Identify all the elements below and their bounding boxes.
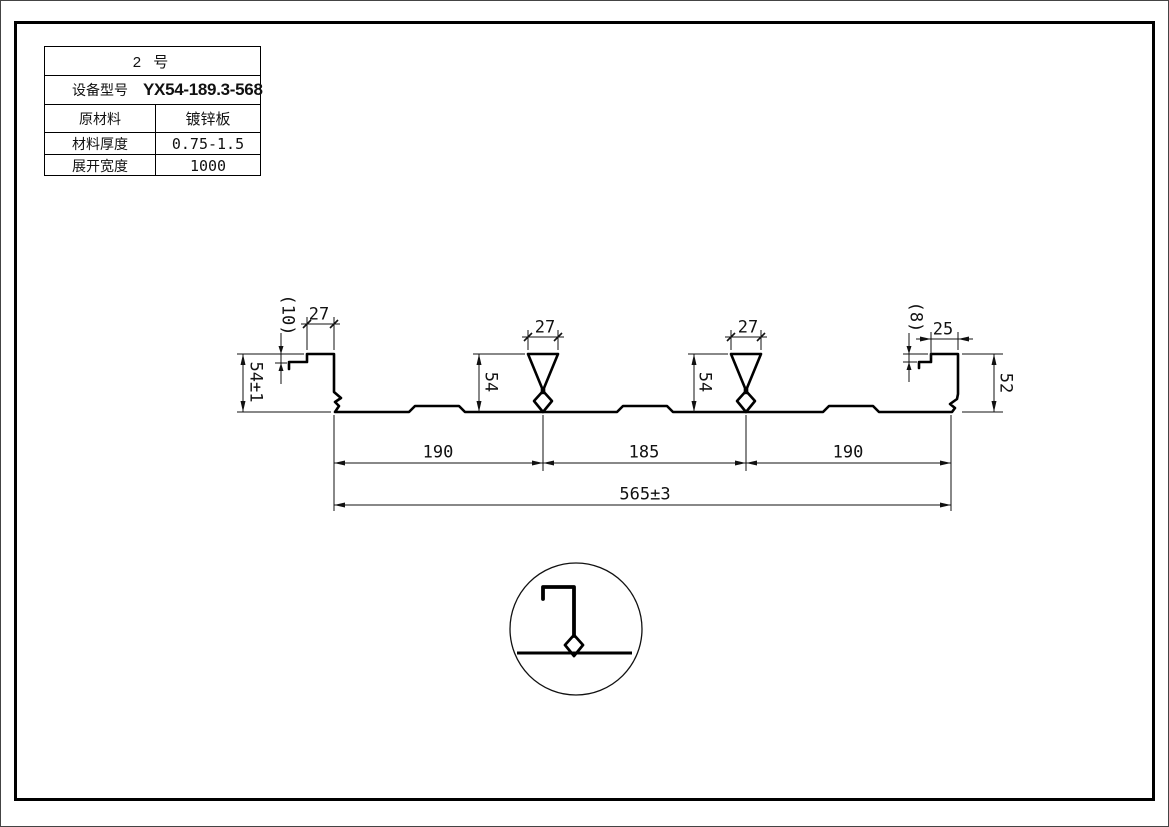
detail-circle-outline xyxy=(510,563,642,695)
dimension-arrows xyxy=(241,337,997,508)
dim-rib2-height-label: 54 xyxy=(696,372,713,392)
dim-left-lip-label: (10) xyxy=(279,295,296,336)
dim-rib2-width-label: 27 xyxy=(738,320,758,337)
detail-hook-edge xyxy=(543,587,574,636)
dim-right-height-label: 52 xyxy=(997,373,1014,393)
profile-section-svg xyxy=(1,1,1169,827)
profile-outline xyxy=(289,354,958,412)
dim-rib1-width-label: 27 xyxy=(535,320,555,337)
dim-left-flange-label: 27 xyxy=(309,307,329,324)
dim-right-flange-label: 25 xyxy=(933,322,953,339)
rib-2-interlock xyxy=(737,391,755,412)
drawing-sheet: 2 号 设备型号 YX54-189.3-568 原材料 镀锌板 材料厚度 0.7… xyxy=(0,0,1169,827)
rib-1 xyxy=(528,354,558,393)
rib-1-interlock xyxy=(534,391,552,412)
dim-overall-width-label: 565±3 xyxy=(619,487,670,504)
dimension-lines xyxy=(237,317,1003,511)
dim-span-right-label: 190 xyxy=(833,445,864,462)
dim-span-mid-label: 185 xyxy=(629,445,660,462)
dim-right-lip-label: (8) xyxy=(907,302,924,333)
dim-span-left-label: 190 xyxy=(423,445,454,462)
detail-circle xyxy=(510,563,642,695)
rib-2 xyxy=(731,354,761,393)
dim-rib1-height-label: 54 xyxy=(482,372,499,392)
dim-left-height-label: 54±1 xyxy=(247,362,264,403)
